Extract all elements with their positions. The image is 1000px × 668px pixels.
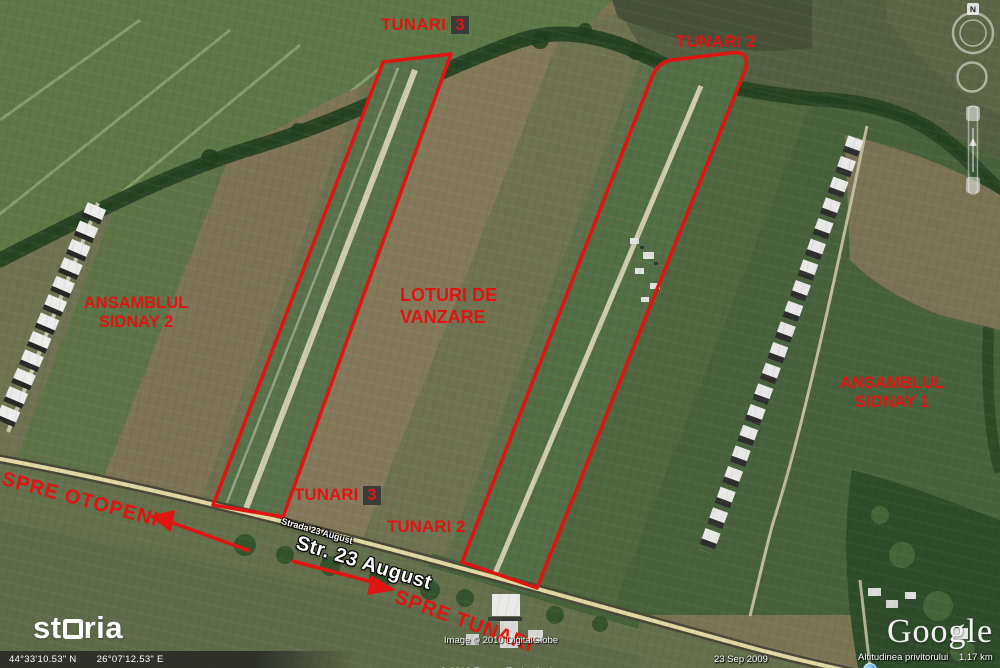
imagery-credits: Image © 2010 DigitalGlobe © 2010 Europa … — [385, 616, 617, 668]
label-loturi-de-vanzare: LOTURI DE VANZARE — [400, 285, 497, 329]
coordinates-bar: 44°33'10.53" N26°07'12.53" E — [0, 651, 356, 668]
earth-eye-icon — [863, 663, 877, 668]
pan-joystick[interactable] — [958, 63, 987, 92]
label-ansamblul-sidnay2-line2: SIDNAY 2 — [61, 313, 211, 332]
label-tunari3-bottom-text: TUNARI — [294, 485, 358, 504]
look-ring[interactable] — [953, 13, 993, 53]
label-ansamblul-sidnay1-line2: SIDNAY 1 — [817, 393, 967, 412]
credit-line: Image © 2010 DigitalGlobe — [385, 636, 617, 646]
label-loturi-line2: VANZARE — [400, 307, 497, 329]
storia-logo-suffix: ria — [84, 610, 123, 645]
eye-altitude-label: Altitudinea privitorului — [858, 652, 948, 663]
zoom-out-handle[interactable] — [966, 177, 980, 193]
label-ansamblul-sidnay2: ANSAMBLUL SIDNAY 2 — [61, 294, 211, 332]
label-tunari3-top-text: TUNARI — [381, 16, 446, 34]
google-logo: Google — [887, 613, 993, 651]
label-loturi-line1: LOTURI DE — [400, 285, 497, 307]
storia-logo-square-o-icon — [63, 619, 83, 639]
zoom-slider[interactable] — [966, 106, 980, 194]
eye-altitude: Altitudinea privitorului 1.17 km — [858, 652, 1000, 668]
nav-controls[interactable]: N — [950, 0, 1000, 205]
zoom-in-handle[interactable] — [966, 106, 980, 121]
label-ansamblul-sidnay2-line1: ANSAMBLUL — [61, 294, 211, 313]
label-tunari2-bottom: TUNARI 2 — [387, 517, 465, 537]
label-tunari3-bottom: TUNARI3 — [294, 485, 381, 505]
label-tunari3-top-badge: 3 — [451, 16, 469, 34]
imagery-date: 23 Sep 2009 — [714, 654, 768, 665]
plot-outline-tunari2 — [462, 53, 746, 588]
arrow-spre-otopeni — [149, 510, 250, 551]
label-tunari3-bottom-badge: 3 — [363, 486, 380, 505]
map-canvas[interactable]: TUNARI3 TUNARI 2 LOTURI DE VANZARE ANSAM… — [0, 0, 1000, 668]
longitude-value: 26°07'12.53" E — [97, 654, 164, 665]
eye-altitude-value: 1.17 km — [959, 652, 993, 663]
storia-logo: stria — [33, 610, 123, 646]
label-tunari2-top: TUNARI 2 — [676, 33, 756, 52]
latitude-value: 44°33'10.53" N — [9, 654, 77, 665]
label-ansamblul-sidnay1: ANSAMBLUL SIDNAY 1 — [817, 374, 967, 412]
annotation-shapes — [0, 0, 1000, 668]
label-ansamblul-sidnay1-line1: ANSAMBLUL — [817, 374, 967, 393]
label-tunari3-top: TUNARI3 — [381, 16, 469, 35]
storia-logo-prefix: st — [33, 610, 62, 645]
